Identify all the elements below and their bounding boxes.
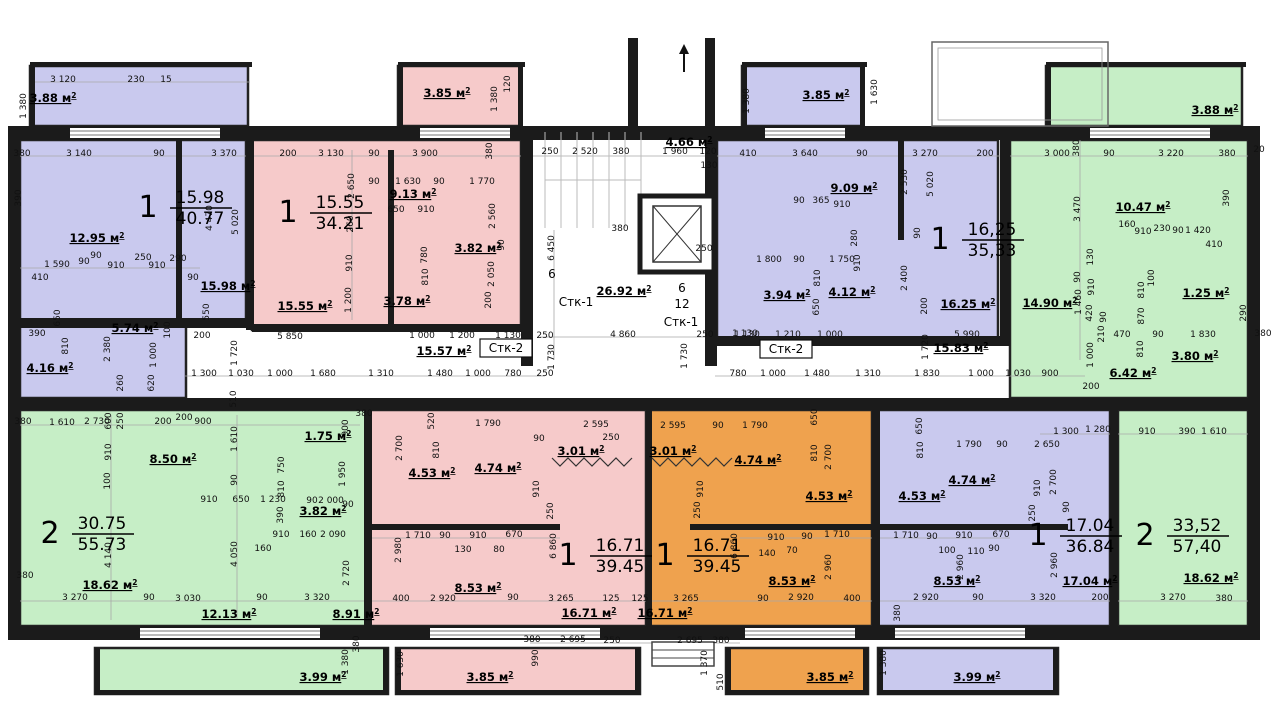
apartment-label-text: 57,40	[1173, 537, 1222, 557]
apartment-label-text: 16.71	[596, 536, 645, 556]
room-area-label: 12.95 м2	[70, 231, 125, 245]
dimension-label: 200	[1082, 382, 1099, 392]
dimension-label: 380	[523, 635, 540, 645]
window	[70, 128, 220, 138]
dimension-label: 2 960	[1050, 552, 1060, 578]
dimension-label: 870	[1137, 307, 1147, 324]
dimension-label: 380	[1254, 329, 1271, 339]
apartment-label-text: 33,52	[1173, 516, 1222, 536]
dimension-label: 1 830	[914, 369, 940, 379]
room-area-label: 4.16 м2	[27, 361, 74, 375]
dimension-label: 1 370	[700, 650, 710, 676]
dimension-label: 1 710	[893, 531, 919, 541]
dimension-label: 910	[104, 443, 114, 460]
window	[895, 628, 1025, 638]
dimension-label: 90	[1099, 311, 1109, 323]
dimension-label: 650	[387, 205, 404, 215]
dimension-label: 410	[31, 273, 48, 283]
wall	[705, 38, 715, 128]
dimension-label: 1 480	[427, 369, 453, 379]
dimension-label: 1 030	[1005, 369, 1031, 379]
apartment-label-text: 40.77	[176, 209, 225, 229]
dimension-label: 900	[1041, 369, 1058, 379]
dimension-label: 1 680	[310, 369, 336, 379]
wall	[635, 648, 640, 695]
window	[420, 128, 510, 138]
dimension-label: 380	[355, 409, 372, 419]
dimension-label: 1 000	[267, 369, 293, 379]
dimension-label: 1 710	[824, 530, 850, 540]
room-area-label: 4.12 м2	[829, 285, 876, 299]
dimension-label: 1 210	[775, 330, 801, 340]
dimension-label: 6 450	[547, 235, 557, 261]
apartment-label-text: 55.73	[78, 535, 127, 555]
dimension-label: 810	[61, 337, 71, 354]
room-area-label: 8.53 м2	[934, 574, 981, 588]
dimension-label: 2 980	[394, 537, 404, 563]
dimension-label: 2 700	[395, 435, 405, 461]
riser-label: 12	[674, 297, 689, 311]
wall	[20, 398, 1258, 410]
dimension-label: 2 700	[1049, 469, 1059, 495]
dimension-label: 390	[1178, 427, 1195, 437]
dimension-label: 1 300	[1053, 427, 1079, 437]
dimension-label: 400	[392, 594, 409, 604]
dimension-label: 2 595	[583, 420, 609, 430]
room-area-label: 8.53 м2	[769, 574, 816, 588]
dimension-label: 250	[536, 369, 553, 379]
dimension-label: 1 380	[742, 88, 752, 114]
apartment-label-text: 1	[1028, 518, 1047, 553]
wall	[383, 648, 388, 695]
wall	[1248, 126, 1260, 640]
room-area-label: 3.88 м2	[1192, 103, 1239, 117]
dimension-label: 1 000	[409, 331, 435, 341]
dimension-label: 750	[277, 456, 287, 473]
apartment-label-text: 16.71	[693, 536, 742, 556]
dimension-label: 390	[1222, 189, 1232, 206]
apartment-label: 233,5257,40	[1135, 516, 1229, 557]
room-area-label: 3.85 м2	[807, 670, 854, 684]
dimension-label: 1 380	[490, 86, 500, 112]
dimension-label: 910	[532, 480, 542, 497]
room-area-label: 1.75 м2	[305, 429, 352, 443]
wall	[364, 410, 372, 626]
dimension-label: 2 650	[1034, 440, 1060, 450]
dimension-label: 130	[1086, 248, 1096, 265]
room-area-label: 3.82 м2	[455, 241, 502, 255]
dimension-label: 90	[90, 251, 102, 261]
room-area-label: 16.71 м2	[638, 606, 693, 620]
dimension-label: 290	[169, 254, 186, 264]
dimension-label: 410	[739, 149, 756, 159]
room-area-label: 6.42 м2	[1110, 366, 1157, 380]
apartment-label: 117.0436.84	[1028, 516, 1122, 557]
dimension-label: 1 000	[465, 369, 491, 379]
room-area-label: 4.74 м2	[475, 461, 522, 475]
dimension-label: 90	[972, 593, 984, 603]
dimension-label: 1 790	[475, 419, 501, 429]
dimension-label: 810	[813, 269, 823, 286]
dimension-label: 90	[1103, 149, 1115, 159]
dimension-label: 250	[696, 330, 713, 340]
dimension-label: 250	[116, 412, 126, 429]
dimension-label: 910	[107, 261, 124, 271]
dimension-label: 5 020	[926, 171, 936, 197]
dimension-label: 70	[786, 546, 798, 556]
dimension-label: 250	[603, 636, 620, 646]
wall	[860, 62, 865, 126]
dimension-label: 90	[433, 177, 445, 187]
dimension-label: 780	[504, 369, 521, 379]
dimension-label: 250	[695, 244, 712, 254]
room-area-label: 9.09 м2	[831, 181, 878, 195]
dimension-label: 3 900	[412, 149, 438, 159]
room-area-label: 4.74 м2	[949, 473, 996, 487]
room-area-label: 4.74 м2	[735, 453, 782, 467]
room-area-label: 4.53 м2	[899, 489, 946, 503]
room-area-label: 9.13 м2	[390, 187, 437, 201]
room-area-label: 26.92 м2	[597, 284, 652, 298]
dimension-label: 810	[1136, 340, 1146, 357]
room-area-label: 15.57 м2	[417, 344, 472, 358]
room-area-label: 3.01 м2	[558, 444, 605, 458]
wall	[398, 62, 525, 67]
dimension-label: 365	[812, 196, 829, 206]
dimension-label: 2 050	[487, 261, 497, 287]
dimension-label: 1 590	[44, 260, 70, 270]
dimension-label: 650	[232, 495, 249, 505]
wall	[1046, 62, 1246, 67]
wall	[878, 690, 1058, 695]
dimension-label: 200	[193, 331, 210, 341]
dimension-label: 90	[1152, 330, 1164, 340]
dimension-label: 3 130	[318, 149, 344, 159]
wall	[95, 648, 100, 695]
room-area-label: 8.91 м2	[333, 607, 380, 621]
dimension-label: 380	[1072, 139, 1082, 156]
room-area-label: 3.85 м2	[803, 88, 850, 102]
room-area-label: 16.25 м2	[941, 297, 996, 311]
dimension-label: 1 300	[191, 369, 217, 379]
dimension-label: 1 710	[405, 531, 431, 541]
room-area-label: 14.90 м2	[1023, 296, 1078, 310]
room-area-label: 17.04 м2	[1063, 574, 1118, 588]
dimension-label: 2 920	[913, 593, 939, 603]
room-area-label: 10.47 м2	[1116, 200, 1171, 214]
dimension-label: 5 990	[954, 330, 980, 340]
dimension-label: 1 790	[742, 421, 768, 431]
apartment-label-text: 30.75	[78, 514, 127, 534]
apartment-label-text: 1	[655, 538, 674, 573]
dimension-label: 1 610	[49, 418, 75, 428]
dimension-label: 990	[531, 649, 541, 666]
dimension-label: 90	[1062, 501, 1072, 513]
wall	[628, 38, 638, 128]
dimension-label: 5 850	[277, 332, 303, 342]
apartment-label-text: 15.98	[176, 188, 225, 208]
dimension-label: 125	[602, 594, 619, 604]
apartment-label: 115.5534.21	[278, 193, 372, 234]
room-area-label: 15.55 м2	[278, 299, 333, 313]
room-area-label: 3.78 м2	[384, 294, 431, 308]
apartment-label-text: 35,33	[968, 241, 1017, 261]
wall	[521, 126, 533, 366]
region-balcony-top-right-green	[1046, 66, 1242, 126]
dimension-label: 110	[967, 547, 984, 557]
apartment-label-text: 1	[278, 195, 297, 230]
dimension-label: 80	[493, 545, 505, 555]
dimension-label: 1 610	[1201, 427, 1227, 437]
dimension-label: 1 310	[855, 369, 881, 379]
dimension-label: 1 610	[230, 426, 240, 452]
dimension-label: 200	[175, 413, 192, 423]
dimension-label: 420	[1085, 304, 1095, 321]
apartment-label: 116.7139.45	[655, 536, 749, 577]
dimension-label: 380	[485, 142, 495, 159]
dimension-label: 510	[716, 673, 726, 690]
apartment-label-text: 36.84	[1066, 537, 1115, 557]
room-area-label: 3.82 м2	[300, 504, 347, 518]
wall	[398, 62, 403, 126]
wall	[370, 524, 560, 530]
room-area-label: 3.80 м2	[1172, 349, 1219, 363]
dimension-label: 250	[541, 147, 558, 157]
dimension-label: 810	[1137, 281, 1147, 298]
dimension-label: 3 370	[211, 149, 237, 159]
dimension-label: 3 220	[1158, 149, 1184, 159]
dimension-label: 3 030	[175, 594, 201, 604]
dimension-label: 1 630	[870, 79, 880, 105]
dimension-label: 15	[160, 75, 171, 85]
dimension-label: 380	[1218, 149, 1235, 159]
dimension-label: 160	[299, 530, 316, 540]
dimension-label: 3 120	[50, 75, 76, 85]
room-area-label: 3.85 м2	[467, 670, 514, 684]
dimension-label: 200	[279, 149, 296, 159]
wall	[872, 410, 880, 626]
dimension-label: 280	[850, 229, 860, 246]
dimension-label: 910	[1138, 427, 1155, 437]
dimension-label: 125	[631, 594, 648, 604]
room-area-label: 18.62 м2	[83, 578, 138, 592]
dimension-label: 90	[988, 544, 1000, 554]
wall	[863, 648, 868, 695]
dimension-label: 90	[368, 177, 380, 187]
dimension-label: 1 000	[760, 369, 786, 379]
wall	[726, 690, 868, 695]
dimension-label: 780	[420, 246, 430, 263]
dimension-label: 200	[920, 297, 930, 314]
room-area-label: 12.13 м2	[202, 607, 257, 621]
dimension-label: 160	[254, 544, 271, 554]
room-area-label: 4.53 м2	[409, 466, 456, 480]
dimension-label: 910	[833, 200, 850, 210]
dimension-label: 3 265	[548, 594, 574, 604]
dimension-label: 90	[913, 227, 923, 239]
riser-label: Стк-2	[769, 342, 804, 356]
apartment-label-text: 2	[40, 516, 59, 551]
dimension-label: 910	[469, 531, 486, 541]
dimension-label: 120	[503, 75, 513, 92]
dimension-label: 380	[612, 147, 629, 157]
dimension-label: 810	[277, 480, 287, 497]
dimension-label: 2 560	[488, 203, 498, 229]
wall	[176, 140, 182, 324]
riser-label: Стк-1	[664, 315, 699, 329]
apartment-label-text: 17.04	[1066, 516, 1115, 536]
dimension-label: 90	[712, 421, 724, 431]
dimension-label: 1 000	[817, 330, 843, 340]
riser-label: 6	[678, 281, 686, 295]
up-arrow-icon	[679, 44, 689, 54]
apartment-label-text: 1	[138, 190, 157, 225]
dimension-label: 2 400	[900, 265, 910, 291]
riser-label: Стк-2	[489, 341, 524, 355]
dimension-label: 520	[427, 412, 437, 429]
dimension-label: 2 380	[103, 336, 113, 362]
dimension-label: 550	[202, 303, 212, 320]
dimension-label: 620	[147, 374, 157, 391]
apartment-label-text: 1	[558, 538, 577, 573]
dimension-label: 380	[352, 635, 362, 652]
dimension-label: 1 310	[368, 369, 394, 379]
dimension-label: 2 960	[824, 554, 834, 580]
dimension-label: 290	[1239, 304, 1249, 321]
dimension-label: 3 140	[66, 149, 92, 159]
dimension-label: 90	[757, 594, 769, 604]
apartment-label-text: 2	[1135, 518, 1154, 553]
wall	[1046, 62, 1051, 126]
room-area-label: 8.53 м2	[455, 581, 502, 595]
dimension-label: 910	[272, 530, 289, 540]
dimension-label: 1 030	[228, 369, 254, 379]
dimension-label: 90	[793, 255, 805, 265]
dimension-label: 1 000	[149, 342, 159, 368]
dimension-label: 2 530	[900, 169, 910, 195]
dimension-label: 380	[14, 417, 31, 427]
dimension-label: 4 860	[610, 330, 636, 340]
dimension-label: 1 380	[879, 650, 889, 676]
apartment-label: 115.9840.77	[138, 188, 232, 229]
dimension-label: 2 520	[572, 147, 598, 157]
dimension-label: 200	[1091, 593, 1108, 603]
dimension-label: 230	[127, 75, 144, 85]
wall	[30, 62, 252, 67]
dimension-label: 3 000	[1044, 149, 1070, 159]
dimension-label: 650	[915, 417, 925, 434]
dimension-label: 250	[602, 433, 619, 443]
dimension-label: 90	[996, 440, 1008, 450]
dimension-label: 380	[13, 149, 30, 159]
dimension-label: 810	[421, 268, 431, 285]
room-area-label: 3.94 м2	[764, 288, 811, 302]
dimension-label: 90	[801, 532, 813, 542]
apartment-label-text: 34.21	[316, 214, 365, 234]
dimension-label: 200	[484, 291, 494, 308]
dimension-label: 510	[229, 390, 239, 407]
dimension-label: 3 640	[792, 149, 818, 159]
wall	[742, 62, 867, 67]
dimension-label: 1 000	[1086, 342, 1096, 368]
dimension-label: 910	[955, 531, 972, 541]
dimension-label: 1 950	[338, 461, 348, 487]
dimension-label: 410	[1205, 240, 1222, 250]
dimension-label: 90	[143, 593, 155, 603]
wall	[246, 126, 254, 330]
dimension-label: 910	[200, 495, 217, 505]
dimension-label: 210	[1097, 325, 1107, 342]
room-area-label: 16.71 м2	[562, 606, 617, 620]
floor-plan-svg: 3 120230151 3801 3801201 3801 6303803 14…	[0, 0, 1280, 720]
room-area-label: 15.83 м2	[934, 341, 989, 355]
dimension-label: 910	[1134, 227, 1151, 237]
apartment-label: 116.7139.45	[558, 536, 652, 577]
dimension-label: 1 420	[1185, 226, 1211, 236]
dimension-label: 3 270	[912, 149, 938, 159]
dimension-label: 3 270	[62, 593, 88, 603]
wall	[1053, 648, 1058, 695]
dimension-label: 1 730	[680, 343, 690, 369]
dimension-label: 650	[812, 298, 822, 315]
dimension-label: 260	[116, 374, 126, 391]
dimension-label: 650	[53, 309, 63, 326]
dimension-label: 90	[187, 273, 199, 283]
dimension-label: 380	[712, 636, 729, 646]
dimension-label: 130	[454, 545, 471, 555]
room-area-label: 3.01 м2	[650, 444, 697, 458]
wall	[95, 690, 388, 695]
dimension-label: 130	[700, 161, 717, 171]
room-area-label: 8.50 м2	[150, 452, 197, 466]
dimension-label: 810	[432, 441, 442, 458]
dimension-label: 250	[536, 331, 553, 341]
dimension-label: 400	[843, 594, 860, 604]
dimension-label: 4 050	[230, 541, 240, 567]
room-area-label: 15.98 м2	[201, 279, 256, 293]
dimension-label: 90	[368, 149, 380, 159]
floor-plan: 3 120230151 3801 3801201 3801 6303803 14…	[0, 0, 1280, 720]
dimension-label: 90	[533, 434, 545, 444]
dimension-label: 390	[28, 329, 45, 339]
dimension-label: 90	[230, 474, 240, 486]
room-area-label: 3.88 м2	[30, 91, 77, 105]
dimension-label: 380	[1215, 594, 1232, 604]
dimension-label: 90	[1172, 226, 1184, 236]
wall	[252, 324, 522, 332]
dimension-label: 600	[104, 412, 114, 429]
wall	[518, 62, 523, 126]
dimension-label: 900	[194, 417, 211, 427]
dimension-label: 670	[505, 530, 522, 540]
dimension-label: 90	[78, 257, 90, 267]
dimension-label: 1 000	[968, 369, 994, 379]
apartment-label-text: 1	[930, 222, 949, 257]
wall	[726, 648, 731, 695]
dimension-label: 2 695	[560, 635, 586, 645]
apartment-label: 230.7555.73	[40, 514, 134, 555]
dimension-label: 3 320	[1030, 593, 1056, 603]
window	[140, 628, 320, 638]
room-area-label: 18.62 м2	[1184, 571, 1239, 585]
dimension-label: 90	[256, 593, 268, 603]
dimension-label: 100	[103, 472, 113, 489]
dimension-label: 2 920	[788, 593, 814, 603]
dimension-label: 90	[1073, 271, 1083, 283]
dimension-label: 1 480	[804, 369, 830, 379]
dimension-label: 3 470	[1073, 196, 1083, 222]
dimension-label: 1 790	[956, 440, 982, 450]
